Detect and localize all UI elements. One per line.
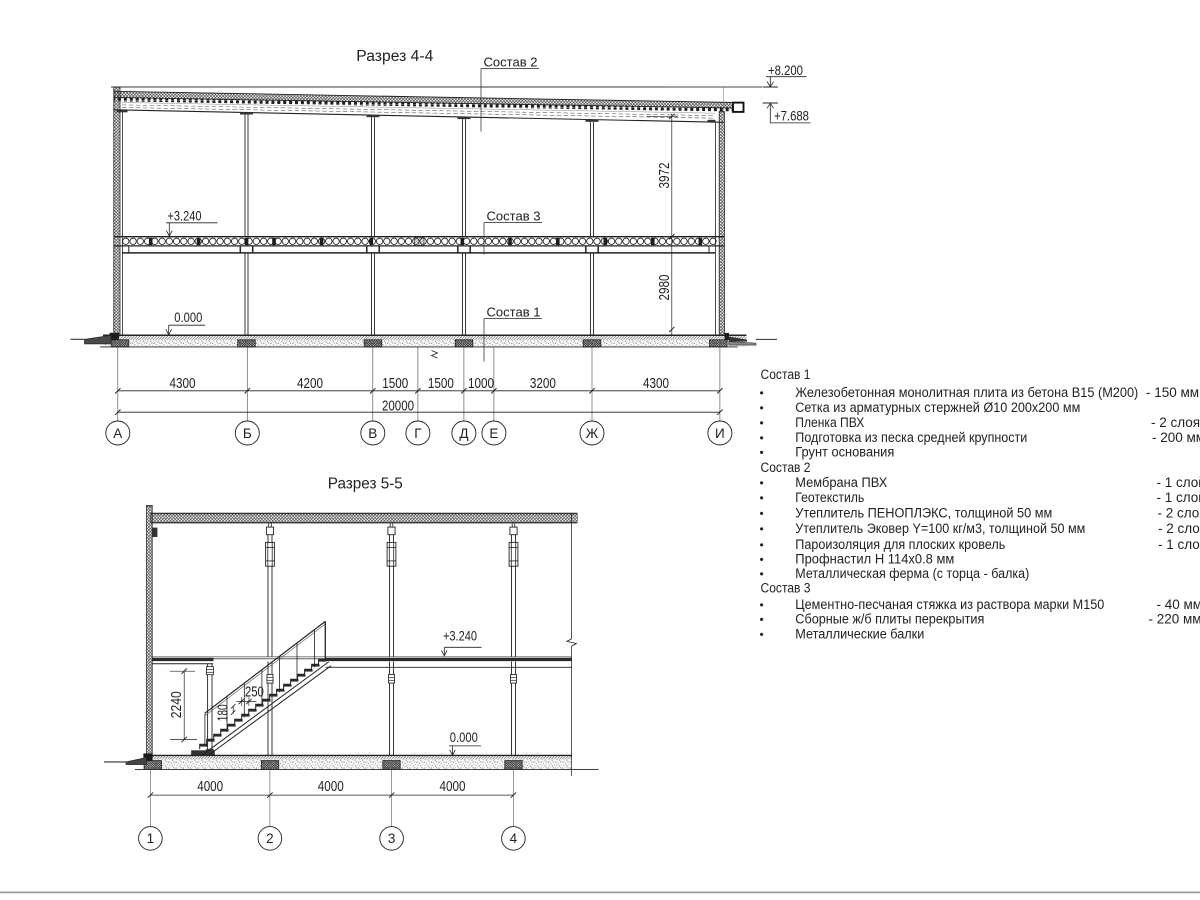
svg-text:Утеплитель ПЕНОПЛЭКС, толщиной: Утеплитель ПЕНОПЛЭКС, толщиной 50 мм	[795, 506, 1052, 521]
svg-text:4200: 4200	[297, 376, 323, 392]
svg-text:Состав 3: Состав 3	[761, 581, 811, 596]
svg-text:250: 250	[245, 684, 264, 700]
svg-text:Г: Г	[414, 426, 422, 441]
svg-text:Металлическая ферма (с торца -: Металлическая ферма (с торца - балка)	[795, 566, 1029, 581]
svg-text:- 1 слой: - 1 слой	[1157, 475, 1200, 490]
svg-text:Сборные ж/б плиты перекрытия: Сборные ж/б плиты перекрытия	[795, 612, 984, 627]
svg-text:•: •	[760, 598, 764, 612]
svg-text:1500: 1500	[428, 376, 454, 392]
svg-text:•: •	[760, 522, 764, 536]
svg-text:•: •	[760, 401, 764, 415]
svg-text:•: •	[760, 446, 764, 460]
svg-text:Подготовка из песка средней кр: Подготовка из песка средней крупности	[795, 430, 1027, 445]
svg-text:Д: Д	[459, 426, 468, 441]
svg-text:•: •	[760, 538, 764, 552]
svg-text:•: •	[760, 476, 764, 490]
svg-text:- 40 мм: - 40 мм	[1157, 597, 1200, 612]
svg-text:Сетка из арматурных стержней Ø: Сетка из арматурных стержней Ø10 200х200…	[795, 400, 1080, 415]
svg-text:Состав 1: Состав 1	[761, 367, 811, 382]
svg-text:Состав 2: Состав 2	[761, 460, 811, 475]
svg-text:4300: 4300	[643, 376, 669, 392]
svg-text:•: •	[760, 628, 764, 642]
svg-text:•: •	[760, 386, 764, 400]
svg-text:+8.200: +8.200	[768, 63, 803, 78]
svg-text:•: •	[760, 491, 764, 505]
svg-text:1500: 1500	[382, 376, 408, 392]
svg-text:Разрез 5-5: Разрез 5-5	[328, 476, 403, 493]
svg-text:•: •	[760, 613, 764, 627]
svg-text:3972: 3972	[657, 163, 673, 189]
svg-text:+3.240: +3.240	[168, 209, 202, 224]
svg-text:4000: 4000	[318, 779, 344, 795]
svg-text:Б: Б	[243, 426, 252, 441]
svg-text:3200: 3200	[530, 376, 556, 392]
svg-text:Мембрана ПВХ: Мембрана ПВХ	[795, 475, 887, 490]
svg-text:•: •	[760, 416, 764, 430]
svg-text:И: И	[715, 426, 725, 441]
svg-text:3: 3	[388, 831, 396, 846]
svg-text:Грунт основания: Грунт основания	[795, 445, 894, 460]
svg-text:Профнастил Н 114х0.8 мм: Профнастил Н 114х0.8 мм	[795, 552, 954, 567]
svg-text:- 220 мм: - 220 мм	[1149, 612, 1200, 627]
svg-text:4000: 4000	[197, 779, 223, 795]
svg-text:В: В	[368, 426, 377, 441]
svg-text:Утеплитель Эковер Y=100 кг/м3,: Утеплитель Эковер Y=100 кг/м3, толщиной …	[795, 521, 1085, 536]
svg-text:•: •	[760, 553, 764, 567]
svg-text:•: •	[760, 567, 764, 581]
svg-text:Состав 1: Состав 1	[487, 305, 541, 319]
svg-text:2240: 2240	[169, 691, 185, 718]
svg-text:- 2 слоя: - 2 слоя	[1158, 506, 1200, 521]
svg-text:Железобетонная монолитная плит: Железобетонная монолитная плита из бетон…	[795, 385, 1138, 400]
svg-text:Пленка ПВХ: Пленка ПВХ	[795, 415, 864, 430]
svg-text:0.000: 0.000	[450, 730, 478, 745]
svg-text:4000: 4000	[440, 779, 466, 795]
svg-text:- 1 слой: - 1 слой	[1158, 537, 1200, 552]
svg-text:Пароизоляция для плоских крове: Пароизоляция для плоских кровель	[795, 537, 1005, 552]
svg-text:Разрез 4-4: Разрез 4-4	[356, 48, 433, 65]
svg-text:2980: 2980	[657, 275, 673, 301]
svg-text:2: 2	[266, 831, 274, 846]
svg-text:- 2 слой: - 2 слой	[1158, 521, 1200, 536]
svg-text:1: 1	[147, 831, 155, 846]
svg-text:Металлические балки: Металлические балки	[795, 627, 924, 642]
svg-text:Состав 2: Состав 2	[484, 55, 538, 69]
svg-text:Геотекстиль: Геотекстиль	[795, 490, 864, 505]
svg-text:- 2 слоя: - 2 слоя	[1151, 415, 1200, 430]
svg-text:- 150 мм: - 150 мм	[1146, 385, 1199, 400]
svg-text:4: 4	[510, 831, 518, 846]
svg-text:А: А	[113, 426, 122, 441]
svg-text:4300: 4300	[170, 376, 196, 392]
svg-text:20000: 20000	[382, 398, 414, 414]
svg-text:180: 180	[216, 704, 232, 721]
svg-text:0.000: 0.000	[174, 310, 202, 325]
svg-text:•: •	[760, 507, 764, 521]
svg-text:Ж: Ж	[586, 426, 599, 441]
svg-text:- 200 мм: - 200 мм	[1152, 430, 1200, 445]
svg-text:Е: Е	[489, 426, 498, 441]
svg-text:Цементно-песчаная стяжка из ра: Цементно-песчаная стяжка из раствора мар…	[795, 597, 1104, 612]
svg-text:1000: 1000	[468, 376, 494, 392]
svg-text:- 1 слой: - 1 слой	[1157, 490, 1200, 505]
svg-text:•: •	[760, 431, 764, 445]
svg-text:+7.688: +7.688	[774, 109, 809, 124]
svg-text:Состав 3: Состав 3	[487, 209, 541, 223]
svg-text:+3.240: +3.240	[443, 628, 477, 643]
